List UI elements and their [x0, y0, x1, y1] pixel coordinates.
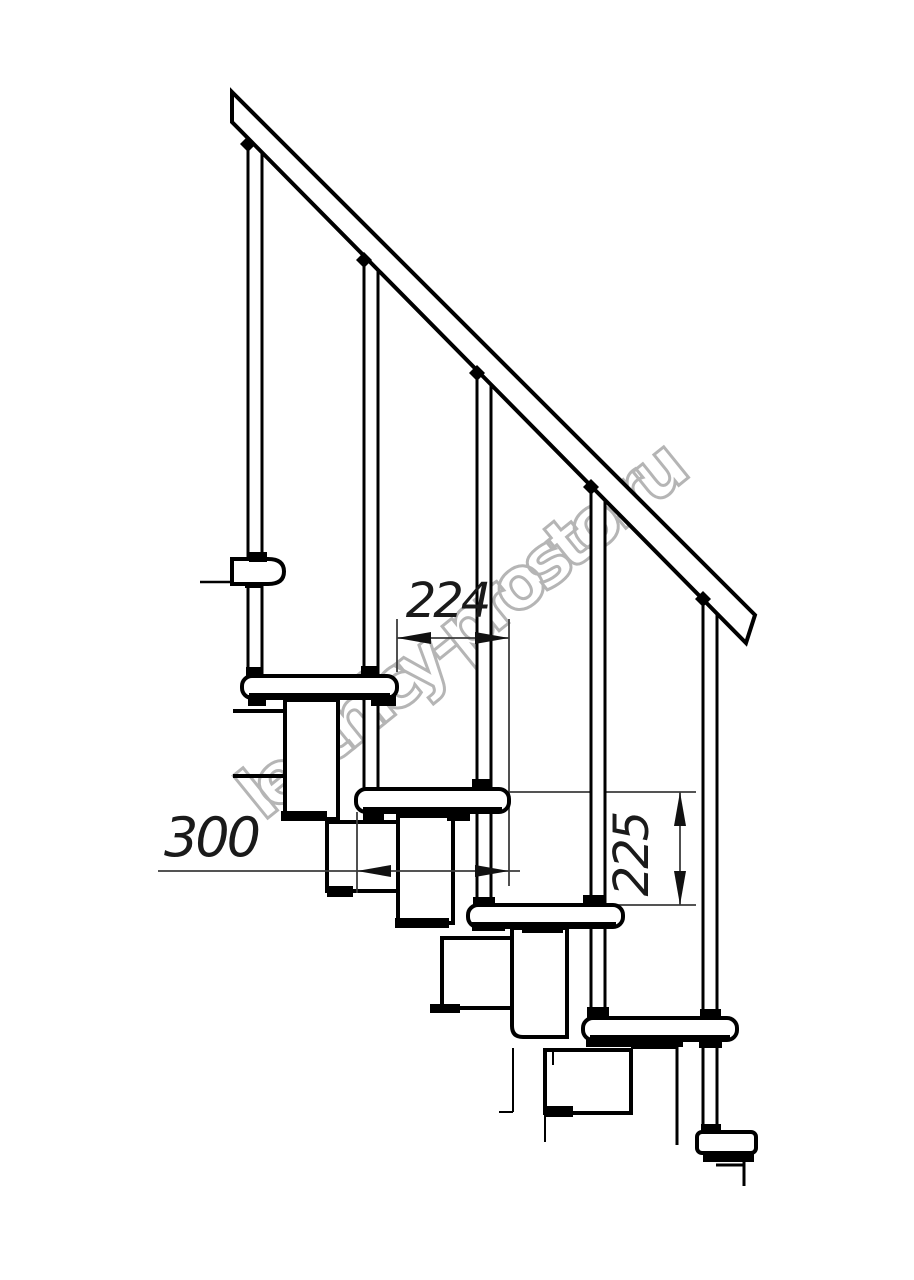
connector-pad: [246, 667, 263, 677]
connector-pad: [703, 1151, 754, 1162]
connector-pad: [361, 666, 379, 677]
connector-pad: [617, 1040, 683, 1047]
baluster-segment: [477, 811, 491, 906]
stringer-band: [430, 1004, 460, 1013]
connector-pad: [249, 552, 267, 562]
stringer-module: [327, 822, 398, 891]
baluster-segment: [364, 697, 378, 790]
baluster: [703, 593, 717, 1019]
connector-pad: [245, 582, 263, 588]
dimension-label-tread-depth: 300: [164, 806, 259, 869]
connector-pad: [447, 811, 470, 821]
stringer-band: [545, 1106, 573, 1117]
staircase-drawing-page: lestnicy-prosto.ru: [0, 0, 914, 1280]
connector-pad: [371, 695, 396, 706]
connector-pad: [701, 1124, 721, 1133]
dimension-label-tread-spacing: 224: [406, 573, 489, 629]
baluster-segment: [703, 1040, 717, 1133]
stringer-module: [442, 938, 512, 1008]
connector-pad: [583, 895, 605, 906]
baluster: [591, 481, 605, 905]
upper-landing-bracket: [232, 559, 284, 584]
stringer-band: [327, 886, 353, 897]
connector-pad: [699, 1040, 722, 1048]
connector-pad: [363, 811, 384, 821]
stringer-module: [545, 1050, 631, 1113]
stringer-module: [398, 816, 453, 923]
connector-pad: [700, 1009, 721, 1019]
stringer-band: [281, 811, 327, 821]
connector-pad: [586, 1039, 617, 1047]
connector-pad: [472, 779, 492, 791]
stringer-band: [395, 918, 449, 928]
baluster: [248, 138, 262, 677]
connector-pad: [522, 924, 563, 933]
dimension-label-riser-height: 225: [604, 813, 660, 896]
baluster: [364, 254, 378, 677]
connector-pad: [472, 922, 505, 931]
connector-pad: [587, 1007, 609, 1019]
stringer-module: [512, 928, 567, 1037]
stringer-module: [285, 700, 338, 819]
baluster-segment: [591, 926, 605, 1019]
staircase-technical-drawing: lestnicy-prosto.ru: [0, 0, 914, 1280]
connector-pad: [473, 897, 495, 907]
connector-pad: [248, 695, 266, 706]
lower-bracket: [697, 1132, 756, 1153]
